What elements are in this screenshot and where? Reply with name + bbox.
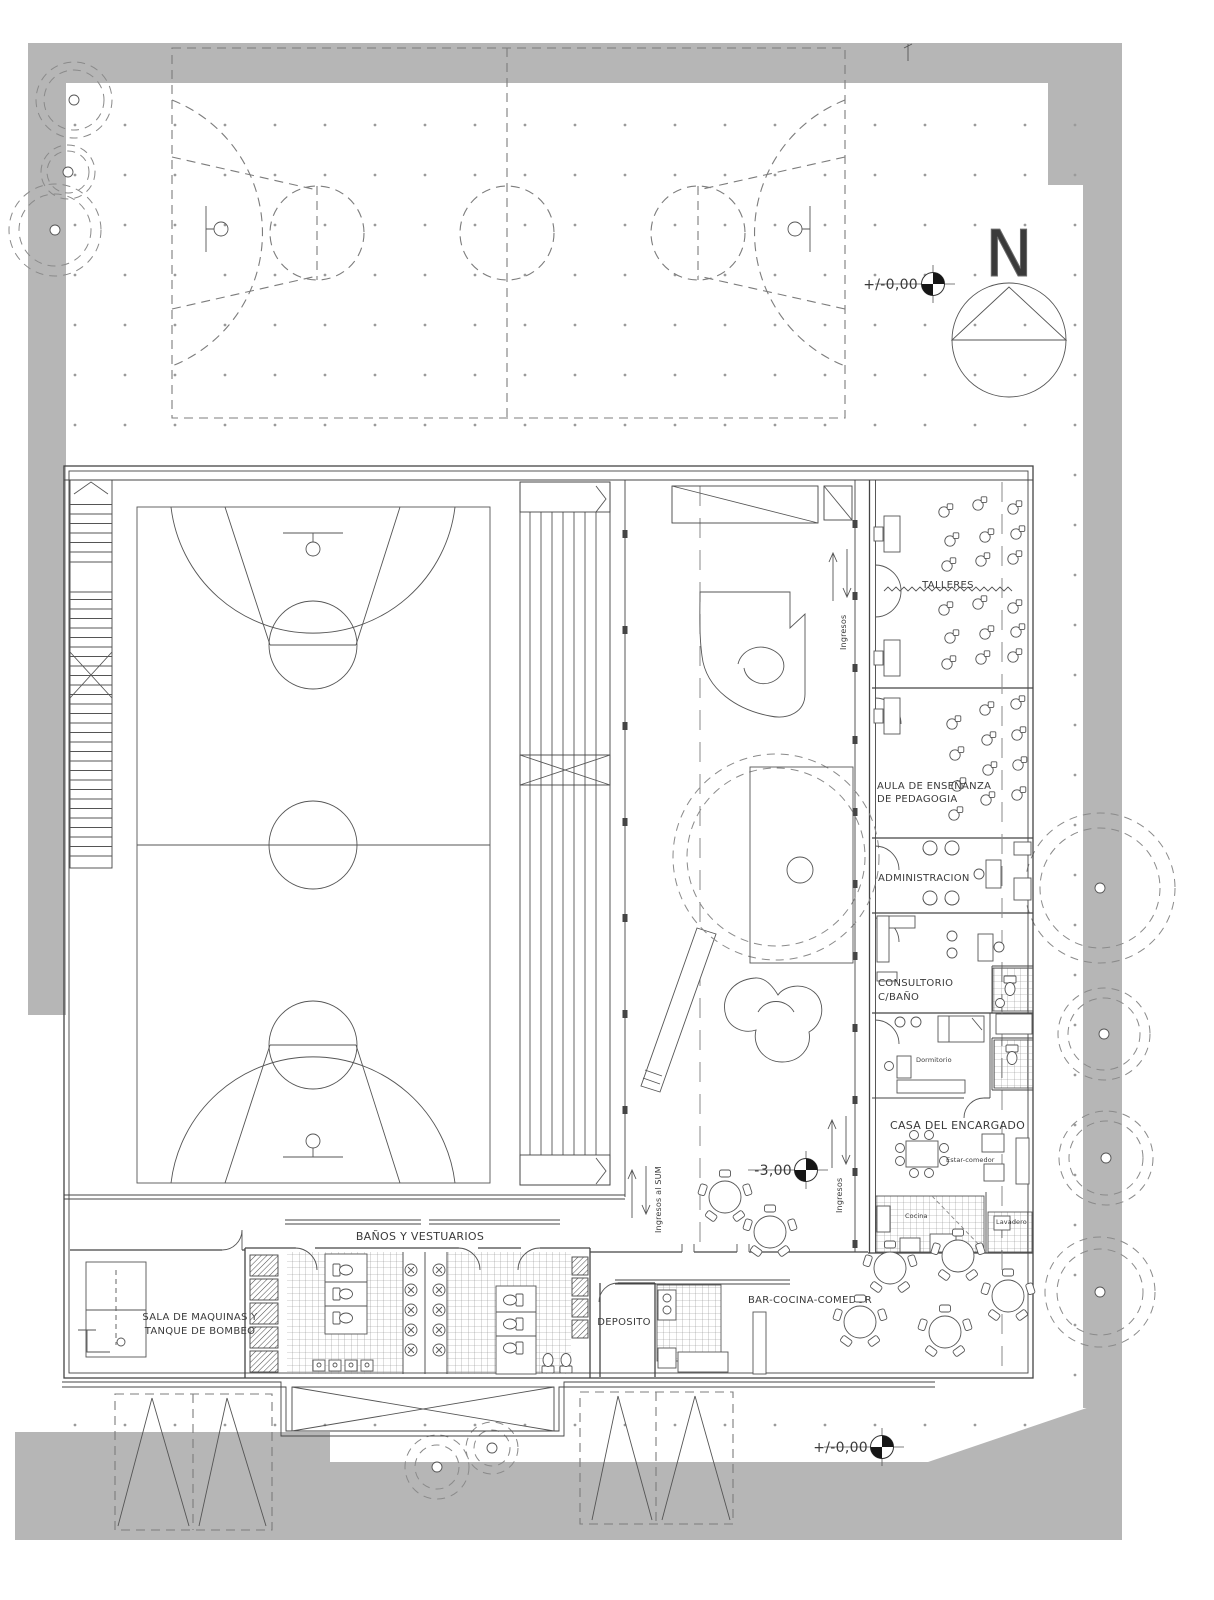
dormitorio-label: Dormitorio: [916, 1056, 952, 1064]
lavadero-label: Lavadero: [996, 1218, 1027, 1226]
sala-maquinas-label-1: SALA DE MAQUINAS Y: [142, 1312, 258, 1323]
toilet-icon: [504, 1294, 524, 1306]
stool-icon: [923, 841, 937, 855]
entry-arrows-icon: [628, 1166, 650, 1218]
consultorio-label-1: CONSULTORIO: [878, 978, 953, 989]
stool-icon: [923, 891, 937, 905]
teacher-desk-icon: [874, 640, 900, 676]
casa-label: CASA DEL ENCARGADO: [890, 1119, 1025, 1132]
stool-icon: [945, 841, 959, 855]
banos-label: BAÑOS Y VESTUARIOS: [356, 1230, 484, 1243]
toilet-icon: [333, 1312, 353, 1324]
hall-ramp: [641, 928, 716, 1092]
room-sala-maquinas: SALA DE MAQUINAS Y TANQUE DE BOMBEO: [70, 1230, 258, 1357]
consultorio-label-2: C/BAÑO: [878, 990, 919, 1003]
bleachers: [520, 482, 610, 1185]
ingresos-top-label: Ingresos: [839, 615, 848, 650]
bar-label: BAR-COCINA-COMEDOR: [748, 1295, 872, 1306]
student-chairs: [947, 696, 1027, 820]
north-letter: N: [985, 218, 1033, 292]
toilet-icon: [333, 1264, 353, 1276]
ingresos-bottom-label: Ingresos: [835, 1178, 844, 1213]
teacher-desk-icon: [874, 698, 900, 734]
toilet-icon: [542, 1354, 554, 1374]
toilet-icon: [1004, 976, 1016, 996]
deposito-label: DEPOSITO: [597, 1317, 651, 1328]
floor-plan-svg: N +/-0,00 -3,00 +/-0,00: [0, 0, 1214, 1600]
room-banos-vestuarios: BAÑOS Y VESTUARIOS: [245, 1220, 590, 1378]
room-casa-encargado: Dormitorio CASA DEL ENCARGADO Estar-come…: [872, 1013, 1033, 1253]
room-administracion: ADMINISTRACION: [875, 841, 1031, 905]
level-sum: -3,00: [754, 1163, 792, 1179]
entrances: Ingresos Ingresos al SUM Ingresos: [628, 549, 851, 1233]
cocina-label: Cocina: [905, 1212, 928, 1220]
entry-arrows-icon: [829, 549, 851, 601]
teacher-desk-icon: [874, 516, 900, 552]
toilet-icon: [560, 1354, 572, 1374]
toilet-icon: [504, 1342, 524, 1354]
round-table-icon: [698, 1170, 753, 1222]
sala-maquinas-label-2: TANQUE DE BOMBEO: [144, 1326, 256, 1337]
hall-stairs-top: [672, 486, 852, 523]
aula-label-2: DE PEDAGOGIA: [877, 794, 958, 805]
talleres-label: TALLERES: [921, 580, 974, 591]
toilet-icon: [504, 1318, 524, 1330]
indoor-basketball-court: [137, 507, 490, 1183]
level-ground-bottom: +/-0,00: [813, 1440, 868, 1456]
ingresos-sum-label: Ingresos al SUM: [654, 1166, 663, 1233]
round-table-icon: [743, 1205, 798, 1257]
estar-comedor-label: Estar-comedor: [946, 1156, 995, 1164]
toilet-icon: [1006, 1045, 1018, 1065]
sculpture-shape-bottom: [724, 978, 821, 1062]
stool-icon: [945, 891, 959, 905]
floor-plan-page: N +/-0,00 -3,00 +/-0,00: [0, 0, 1214, 1600]
west-staircase: [70, 480, 112, 868]
aula-label-1: AULA DE ENSEÑANZA: [877, 779, 991, 792]
bar-cocina-comedor: DEPOSITO BAR-COCINA-COMEDOR: [597, 1229, 1035, 1377]
hall-round-tables: [698, 1170, 798, 1257]
sculpture-shape-top: [700, 592, 805, 717]
level-ground-top: +/-0,00: [863, 277, 918, 293]
entry-arrows-icon: [828, 1116, 850, 1168]
room-aula: AULA DE ENSEÑANZA DE PEDAGOGIA: [874, 696, 1027, 820]
toilet-icon: [333, 1288, 353, 1300]
room-consultorio: CONSULTORIO C/BAÑO: [875, 916, 1033, 1013]
administracion-label: ADMINISTRACION: [878, 873, 970, 884]
